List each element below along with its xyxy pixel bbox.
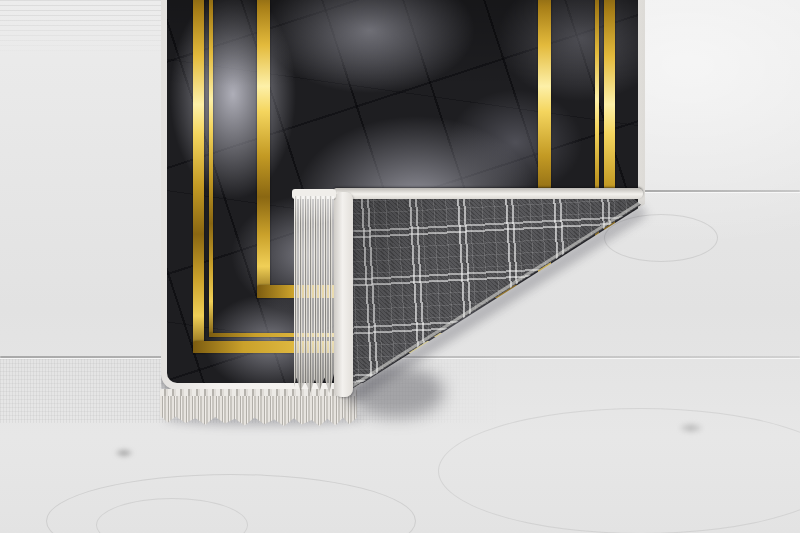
flap-side-binding [334,192,353,397]
gold-line-outer-left [193,0,204,353]
gold-line-inner-left [257,0,270,298]
gold-pinstripe-left [209,0,213,337]
rug-product-photo [0,0,800,533]
flap-fringe-strands [294,196,334,393]
wood-knot [114,448,134,458]
flap-top-binding [334,188,643,199]
wood-knot [678,422,704,434]
plank-seam-upper [638,190,800,192]
wood-grain-arc [438,408,800,533]
